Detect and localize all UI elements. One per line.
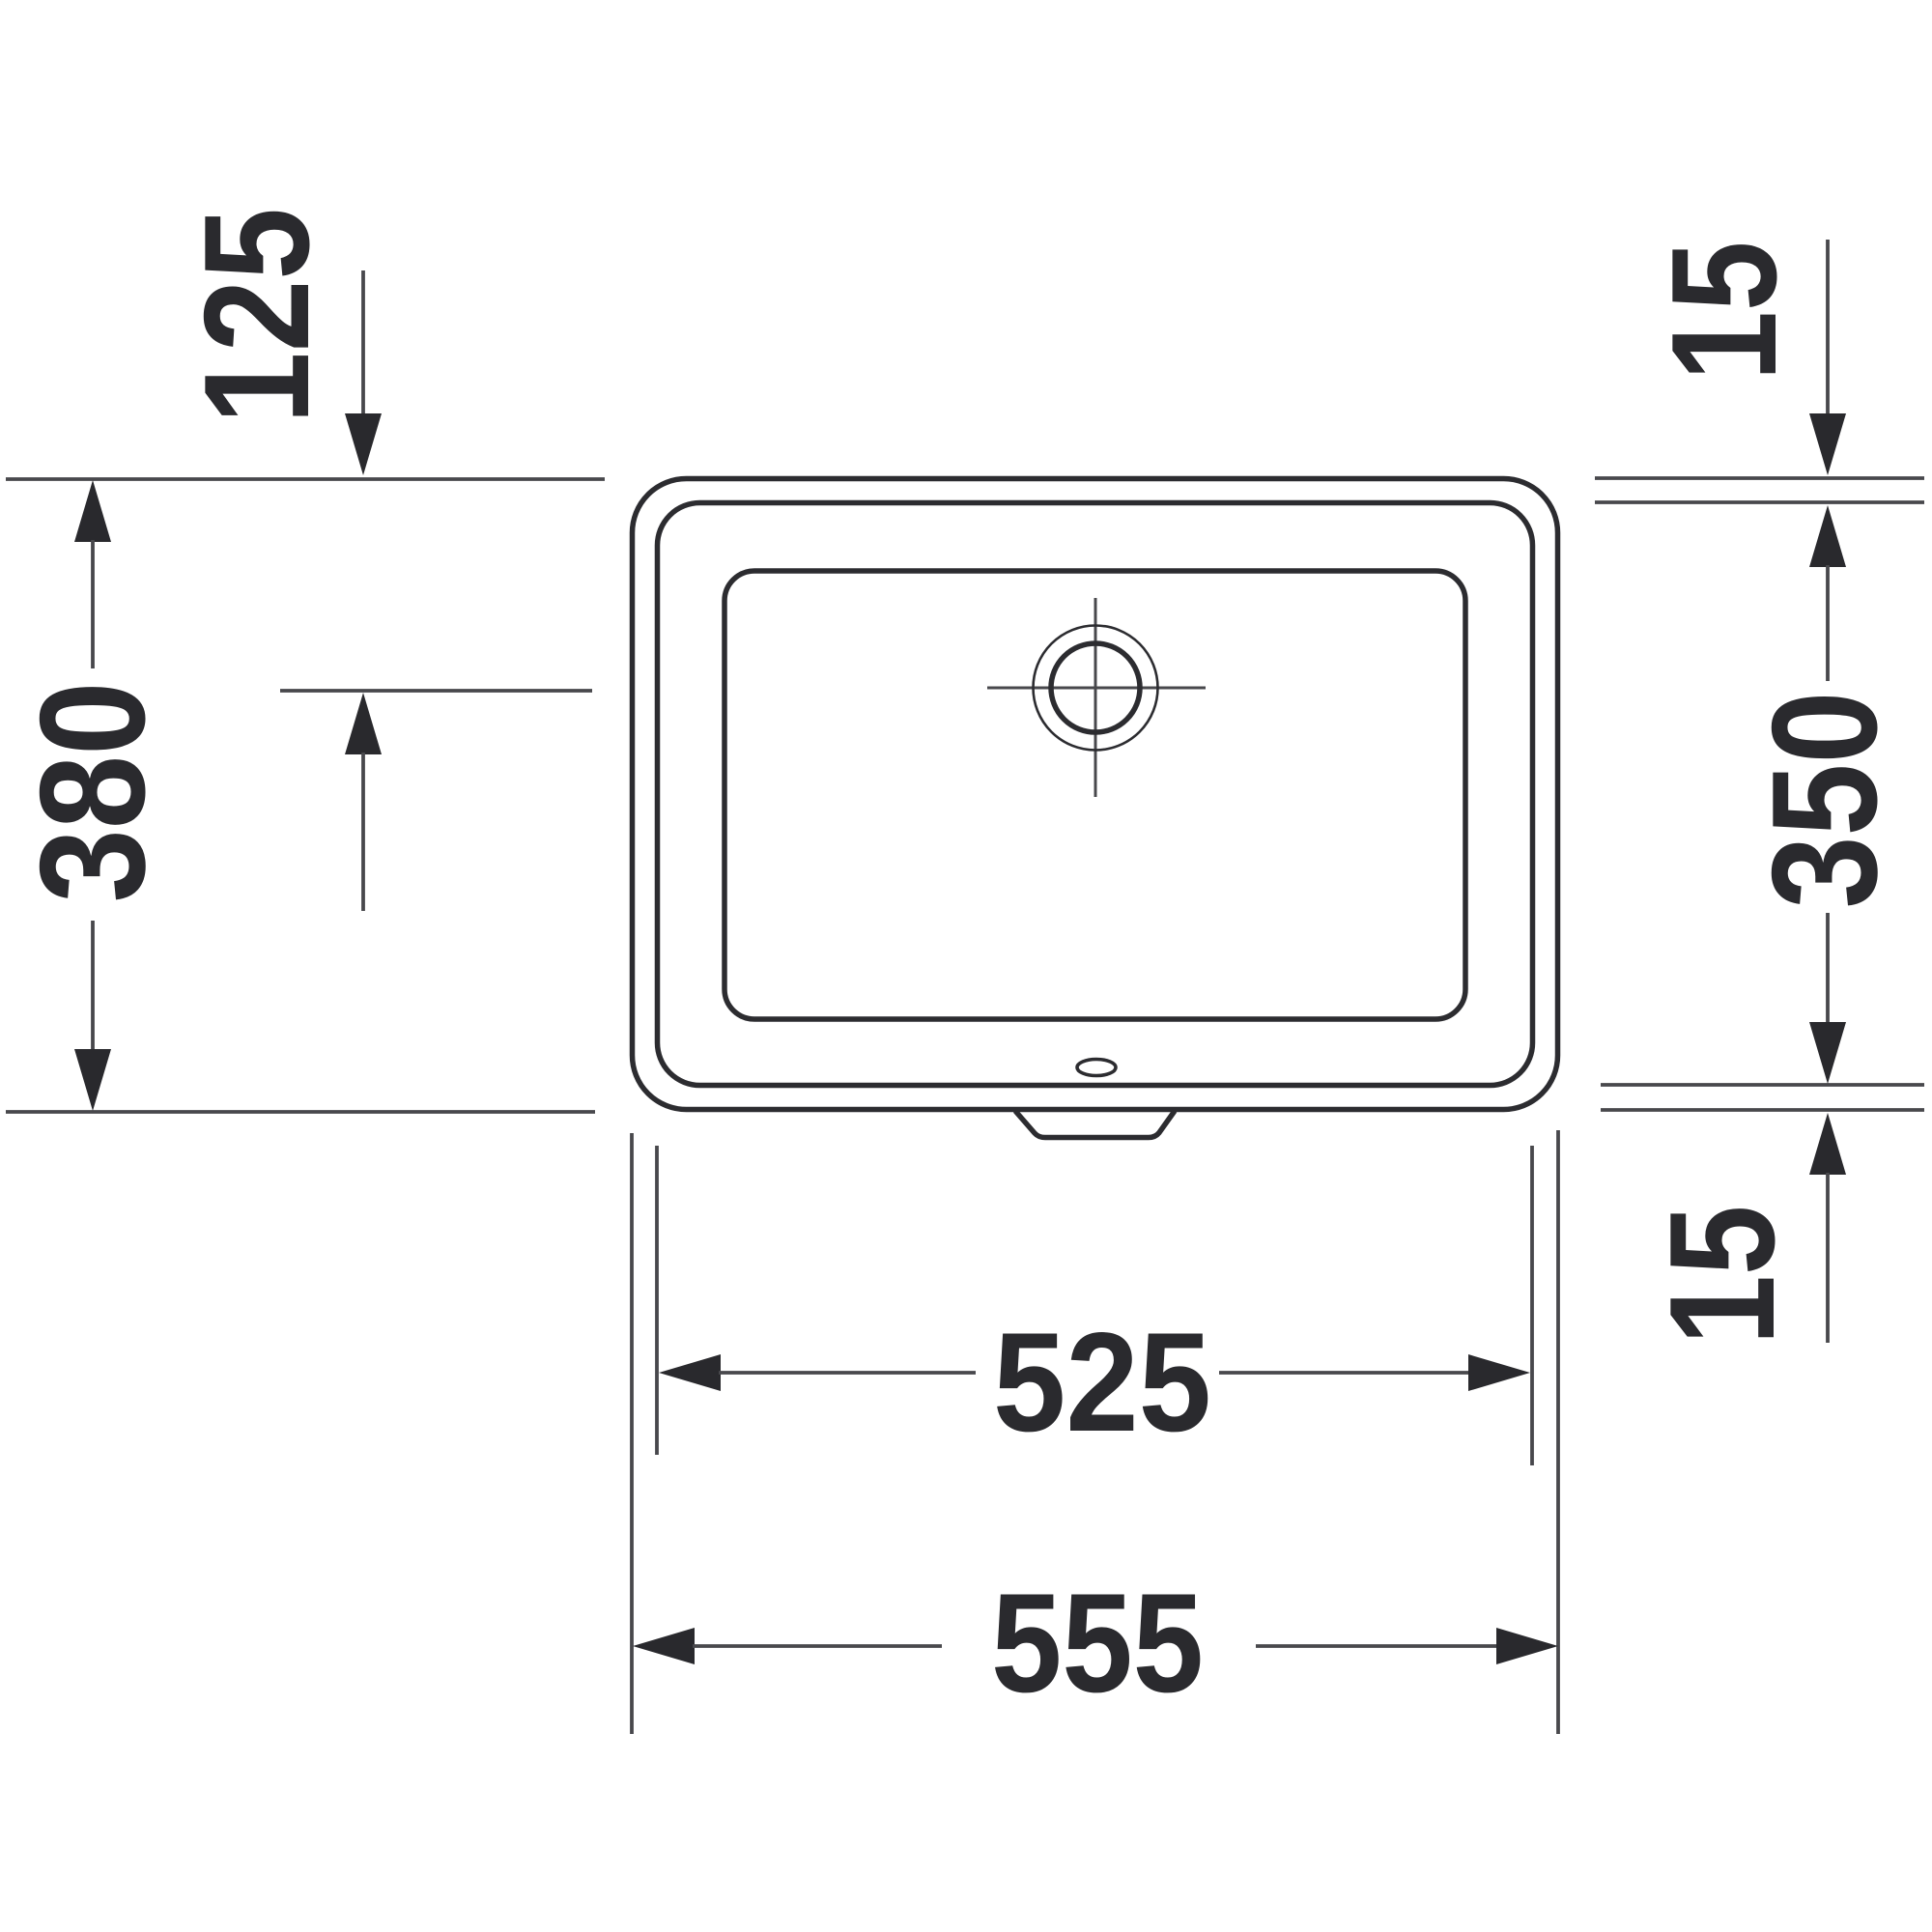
svg-text:525: 525	[993, 1303, 1211, 1461]
svg-text:15: 15	[1640, 241, 1807, 382]
svg-text:555: 555	[991, 1564, 1204, 1721]
svg-text:125: 125	[173, 208, 340, 424]
svg-text:350: 350	[1741, 692, 1908, 909]
svg-text:380: 380	[9, 682, 176, 903]
svg-text:15: 15	[1638, 1206, 1805, 1346]
